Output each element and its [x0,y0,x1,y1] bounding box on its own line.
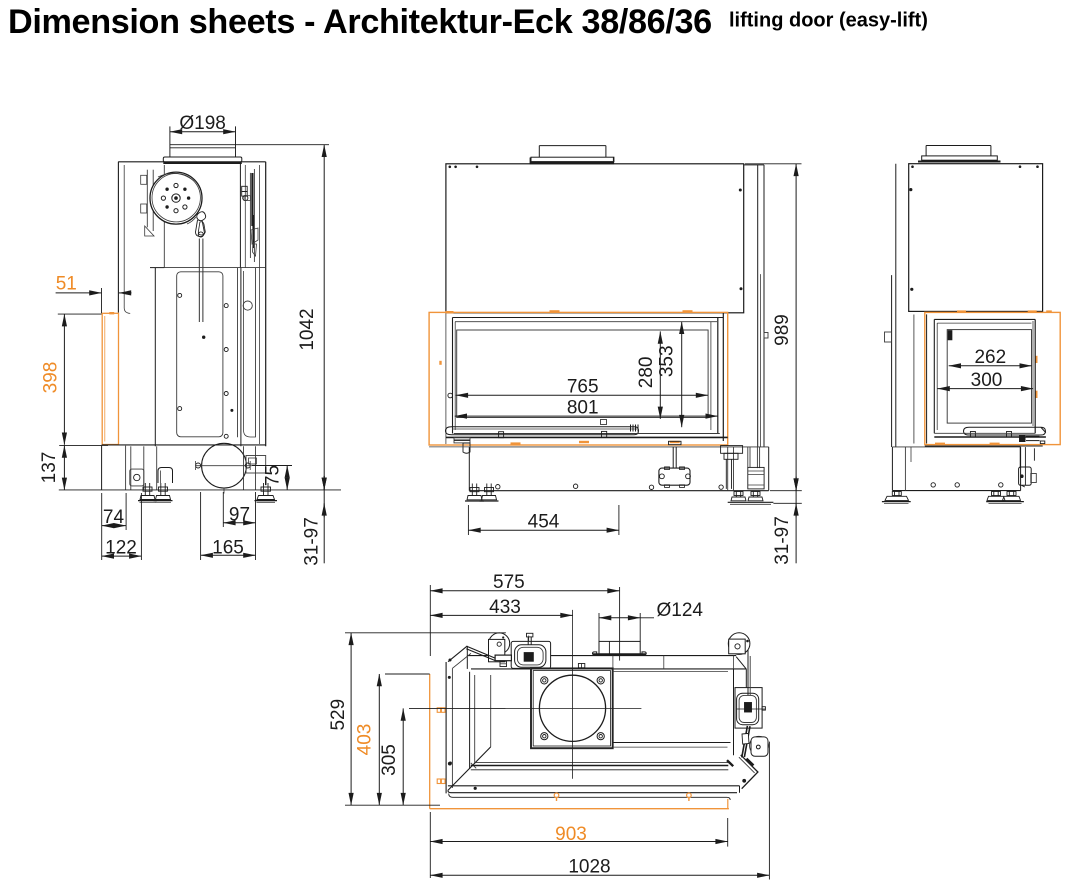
svg-text:305: 305 [379,744,400,776]
svg-text:903: 903 [555,824,587,845]
svg-text:165: 165 [212,537,244,558]
svg-text:262: 262 [974,347,1006,368]
svg-text:989: 989 [772,314,793,346]
svg-text:97: 97 [229,504,250,525]
svg-text:1028: 1028 [568,857,610,878]
svg-text:75: 75 [263,465,284,486]
svg-text:51: 51 [56,274,77,295]
svg-text:280: 280 [636,357,657,389]
svg-text:1042: 1042 [297,308,318,350]
svg-text:765: 765 [567,377,599,398]
svg-text:403: 403 [354,724,375,756]
svg-text:398: 398 [41,362,62,394]
svg-text:137: 137 [39,452,60,484]
svg-text:454: 454 [528,512,560,533]
svg-text:353: 353 [657,345,678,377]
svg-text:Dimension sheets - Architektur: Dimension sheets - Architektur-Eck 38/86… [8,3,712,41]
svg-text:122: 122 [105,538,137,559]
svg-text:Ø124: Ø124 [657,600,704,621]
svg-text:31-97: 31-97 [772,516,793,565]
svg-text:529: 529 [328,699,349,731]
svg-text:31-97: 31-97 [301,517,322,566]
svg-text:300: 300 [971,370,1003,391]
svg-text:433: 433 [489,597,521,618]
svg-text:575: 575 [493,572,525,593]
svg-text:Ø198: Ø198 [179,113,225,134]
svg-text:lifting door (easy-lift): lifting door (easy-lift) [729,10,928,32]
svg-text:801: 801 [567,398,599,419]
svg-text:74: 74 [103,507,125,528]
